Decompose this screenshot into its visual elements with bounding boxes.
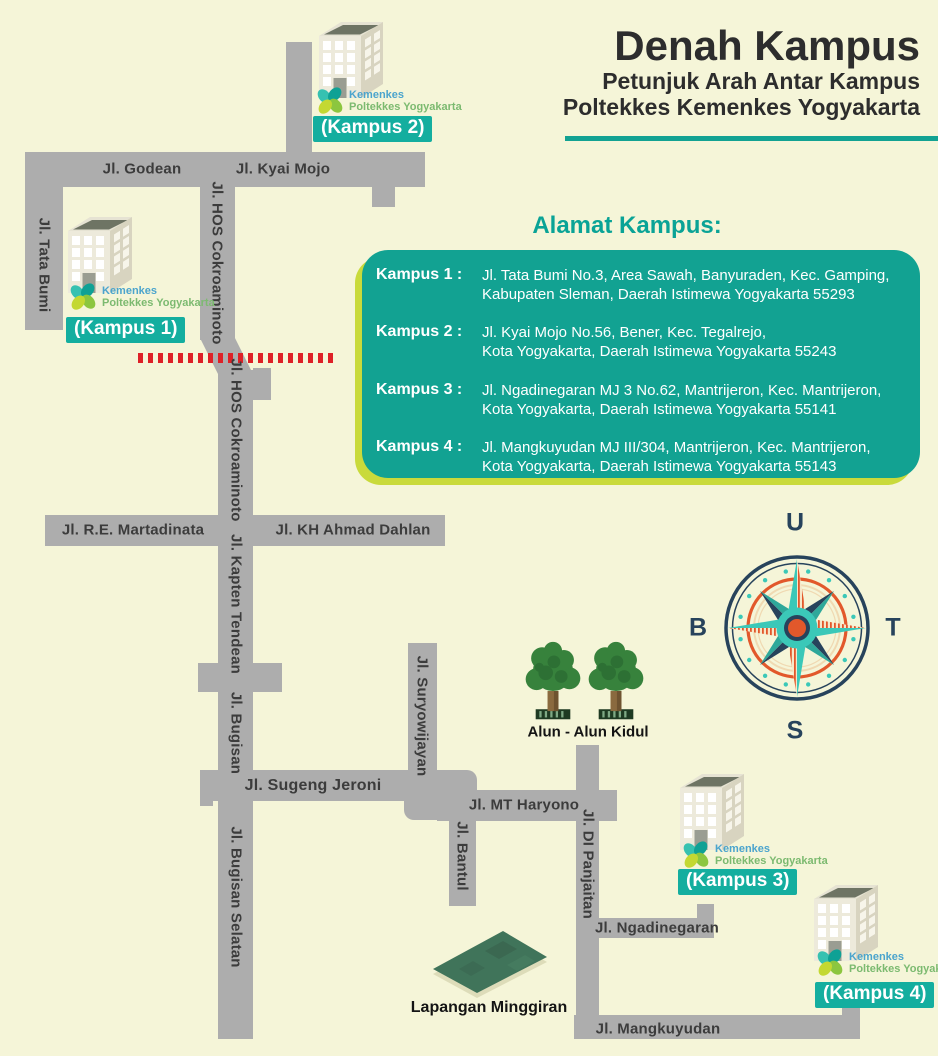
lapangan-minggiran-label: Lapangan Minggiran: [411, 999, 567, 1017]
compass-south-label: S: [787, 717, 804, 746]
address-text: Jl. Mangkuyudan MJ III/304, Mantrijeron,…: [482, 438, 908, 476]
address-label: Kampus 2 :: [376, 323, 478, 341]
address-line: Jl. Kyai Mojo No.56, Bener, Kec. Tegalre…: [482, 323, 908, 342]
street-stub-below-kyaimojo: [372, 186, 395, 207]
campus3-logo: Kemenkes Poltekkes Yogyakarta: [681, 840, 828, 870]
page-subtitle-2: Poltekkes Kemenkes Yogyakarta: [563, 94, 920, 120]
street-label-bantul: Jl. Bantul: [454, 821, 471, 891]
address-label: Kampus 1 :: [376, 266, 478, 284]
street-label-godean: Jl. Godean: [103, 161, 182, 178]
logo-line2: Poltekkes Yogyakarta: [849, 963, 938, 976]
campus1-logo: Kemenkes Poltekkes Yogyakarta: [68, 282, 215, 312]
logo-text: Kemenkes Poltekkes Yogyakarta: [715, 843, 828, 868]
street-label-sugeng-jeroni: Jl. Sugeng Jeroni: [245, 777, 382, 795]
header-underline: [565, 136, 938, 141]
address-line: Jl. Mangkuyudan MJ III/304, Mantrijeron,…: [482, 438, 908, 457]
kemenkes-logo-icon: [681, 840, 711, 870]
campus4-logo: Kemenkes Poltekkes Yogyakarta: [815, 948, 938, 978]
logo-line1: Kemenkes: [715, 843, 828, 856]
campus3-label: (Kampus 3): [678, 869, 797, 895]
street-label-mt-haryono: Jl. MT Haryono: [469, 797, 579, 814]
street-label-hos-upper: Jl. HOS Cokroaminoto: [209, 181, 226, 344]
address-line: Jl. Ngadinegaran MJ 3 No.62, Mantrijeron…: [482, 381, 908, 400]
tree-icon: [521, 640, 585, 722]
tree-icon: [584, 640, 648, 722]
address-line: Kota Yogyakarta, Daerah Istimewa Yogyaka…: [482, 400, 908, 419]
street-label-mangkuyudan: Jl. Mangkuyudan: [596, 1021, 721, 1038]
addresses-heading: Alamat Kampus:: [348, 212, 906, 240]
street-label-bugisan-selatan: Jl. Bugisan Selatan: [228, 826, 245, 967]
logo-text: Kemenkes Poltekkes Yogyakarta: [102, 285, 215, 310]
compass-rose-icon: [722, 553, 872, 703]
compass-north-label: U: [786, 509, 804, 538]
street-label-ahmad-dahlan: Jl. KH Ahmad Dahlan: [276, 522, 431, 539]
address-text: Jl. Ngadinegaran MJ 3 No.62, Mantrijeron…: [482, 381, 908, 419]
logo-line2: Poltekkes Yogyakarta: [715, 855, 828, 868]
street-kampus2-connector: [286, 42, 312, 154]
campus4-label: (Kampus 4): [815, 982, 934, 1008]
page-title: Denah Kampus: [563, 24, 920, 68]
street-label-kyai-mojo: Jl. Kyai Mojo: [236, 161, 330, 178]
logo-line2: Poltekkes Yogyakarta: [349, 101, 462, 114]
street-label-ngadinegaran: Jl. Ngadinegaran: [595, 920, 719, 937]
address-line: Kabupaten Sleman, Daerah Istimewa Yogyak…: [482, 285, 908, 304]
street-label-hos-lower: Jl. HOS Cokroaminoto: [228, 358, 245, 521]
address-line: Kota Yogyakarta, Daerah Istimewa Yogyaka…: [482, 457, 908, 476]
street-label-di-panjaitan: Jl. DI Panjaitan: [580, 809, 597, 919]
campus2-label: (Kampus 2): [313, 116, 432, 142]
address-line: Jl. Tata Bumi No.3, Area Sawah, Banyurad…: [482, 266, 908, 285]
street-label-suryowijayan: Jl. Suryowijayan: [414, 656, 431, 777]
logo-line1: Kemenkes: [102, 285, 215, 298]
street-label-tata-bumi: Jl. Tata Bumi: [36, 218, 53, 313]
campus1-label: (Kampus 1): [66, 317, 185, 343]
poster-header: Denah Kampus Petunjuk Arah Antar Kampus …: [563, 24, 920, 120]
campus-map-poster: Jl. Godean Jl. Kyai Mojo Jl. Tata Bumi J…: [0, 0, 938, 1056]
alun-alun-kidul-label: Alun - Alun Kidul: [527, 724, 648, 741]
page-subtitle-1: Petunjuk Arah Antar Kampus: [563, 68, 920, 94]
kemenkes-logo-icon: [68, 282, 98, 312]
field-icon: [428, 928, 552, 1000]
address-text: Jl. Tata Bumi No.3, Area Sawah, Banyurad…: [482, 266, 908, 304]
logo-line1: Kemenkes: [849, 951, 938, 964]
street-hos-bump: [253, 368, 271, 400]
address-label: Kampus 3 :: [376, 381, 478, 399]
street-ngadinegaran-notch: [697, 904, 714, 919]
campus2-logo: Kemenkes Poltekkes Yogyakarta: [315, 86, 462, 116]
address-text: Jl. Kyai Mojo No.56, Bener, Kec. Tegalre…: [482, 323, 908, 361]
addresses-panel: Kampus 1 : Jl. Tata Bumi No.3, Area Sawa…: [362, 250, 920, 478]
compass-east-label: T: [885, 614, 900, 643]
logo-text: Kemenkes Poltekkes Yogyakarta: [349, 89, 462, 114]
street-sugeng-jeroni-stub: [200, 770, 213, 806]
address-line: Kota Yogyakarta, Daerah Istimewa Yogyaka…: [482, 342, 908, 361]
street-label-kapten-tendean: Jl. Kapten Tendean: [228, 534, 245, 674]
street-label-bugisan: Jl. Bugisan: [228, 692, 245, 774]
logo-text: Kemenkes Poltekkes Yogyakarta: [849, 951, 938, 976]
logo-line1: Kemenkes: [349, 89, 462, 102]
kemenkes-logo-icon: [815, 948, 845, 978]
logo-line2: Poltekkes Yogyakarta: [102, 297, 215, 310]
compass-west-label: B: [689, 614, 707, 643]
street-label-martadinata: Jl. R.E. Martadinata: [62, 522, 204, 539]
address-label: Kampus 4 :: [376, 438, 478, 456]
kemenkes-logo-icon: [315, 86, 345, 116]
